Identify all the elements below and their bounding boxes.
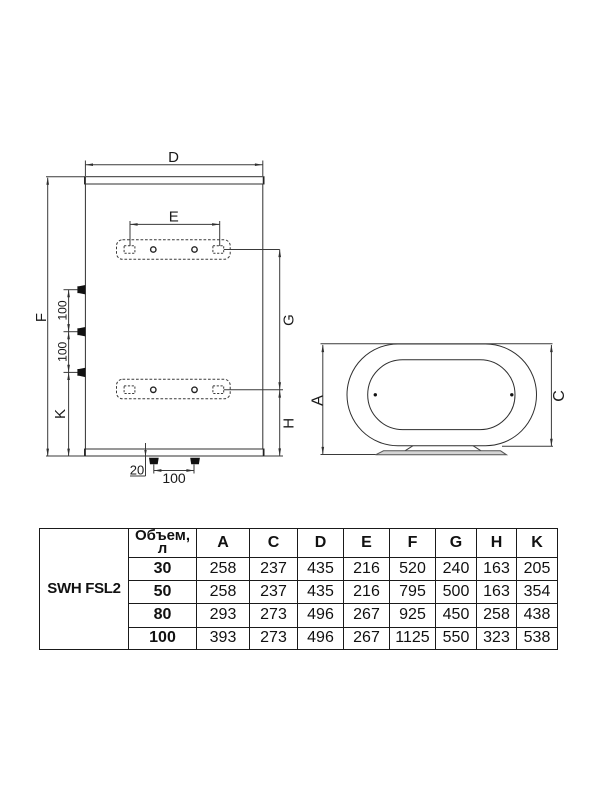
svg-text:100: 100 bbox=[55, 300, 69, 320]
svg-text:E: E bbox=[169, 209, 179, 226]
svg-text:D: D bbox=[168, 149, 179, 166]
svg-text:20: 20 bbox=[130, 463, 144, 478]
svg-text:G: G bbox=[281, 314, 298, 326]
svg-text:F: F bbox=[33, 313, 50, 322]
svg-text:A: A bbox=[309, 395, 326, 406]
svg-text:K: K bbox=[52, 409, 69, 419]
svg-text:H: H bbox=[280, 418, 297, 429]
svg-text:C: C bbox=[551, 390, 568, 402]
svg-text:100: 100 bbox=[162, 470, 186, 486]
svg-text:100: 100 bbox=[55, 341, 69, 361]
